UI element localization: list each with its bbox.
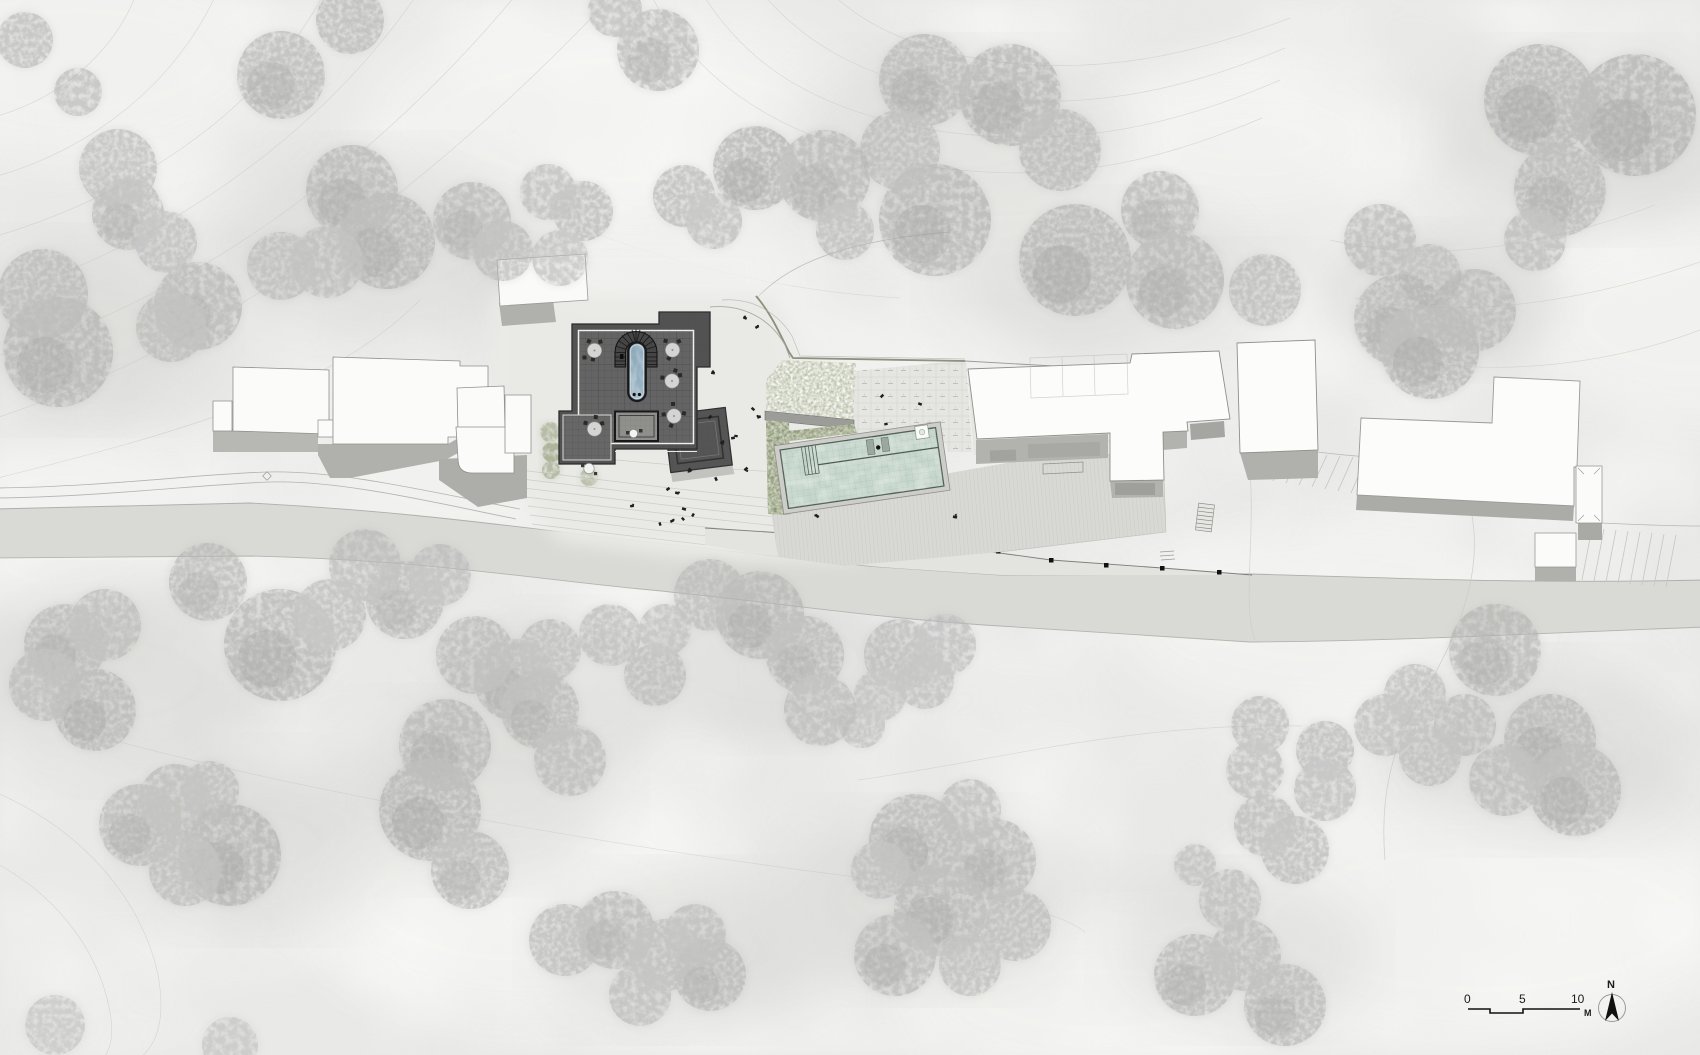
svg-text:M: M — [1584, 1008, 1592, 1018]
svg-text:0: 0 — [1464, 992, 1471, 1006]
svg-text:10: 10 — [1571, 992, 1585, 1006]
svg-text:5: 5 — [1519, 992, 1526, 1006]
svg-text:N: N — [1607, 979, 1615, 991]
